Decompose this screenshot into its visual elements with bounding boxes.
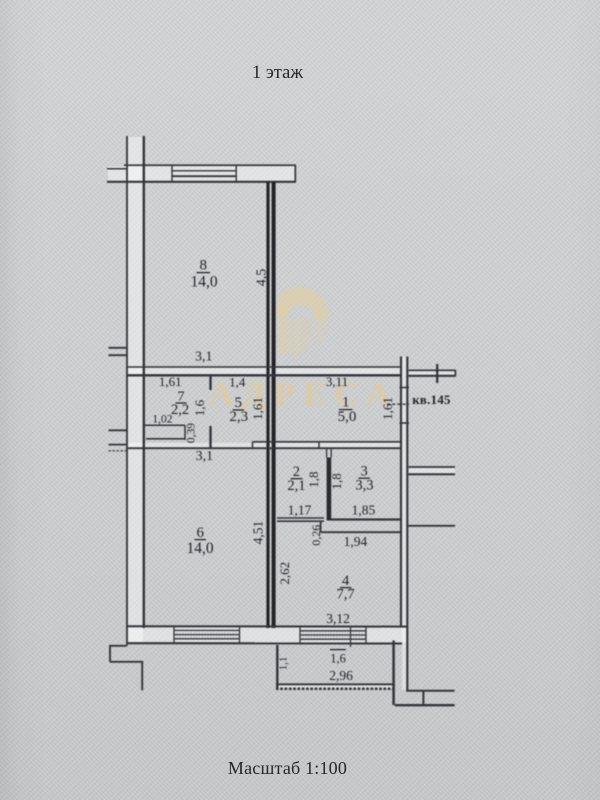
- svg-text:1,6: 1,6: [192, 399, 207, 416]
- svg-text:2,62: 2,62: [277, 562, 292, 585]
- svg-text:2,96: 2,96: [329, 668, 353, 683]
- svg-text:2,3: 2,3: [229, 409, 248, 425]
- svg-text:3,3: 3,3: [355, 477, 373, 493]
- svg-text:3,11: 3,11: [326, 374, 348, 389]
- svg-text:1,02: 1,02: [152, 414, 172, 426]
- svg-text:1,94: 1,94: [344, 534, 368, 549]
- svg-text:1,61: 1,61: [250, 397, 265, 420]
- svg-text:1,8: 1,8: [329, 473, 344, 489]
- svg-text:1,85: 1,85: [352, 503, 376, 518]
- svg-text:3,1: 3,1: [195, 349, 213, 364]
- svg-text:2,1: 2,1: [287, 478, 305, 494]
- svg-text:14,0: 14,0: [190, 274, 217, 291]
- svg-text:1,1: 1,1: [278, 657, 290, 671]
- svg-text:4,5: 4,5: [255, 269, 270, 287]
- svg-text:4,51: 4,51: [251, 521, 266, 545]
- svg-text:кв.145: кв.145: [412, 393, 450, 407]
- svg-text:1,17: 1,17: [288, 503, 312, 518]
- svg-text:5,0: 5,0: [338, 409, 357, 425]
- svg-text:7,7: 7,7: [337, 587, 355, 603]
- svg-text:8: 8: [199, 258, 207, 274]
- svg-text:0,26: 0,26: [309, 525, 323, 546]
- svg-text:2,2: 2,2: [171, 402, 189, 418]
- svg-text:0,39: 0,39: [185, 423, 197, 443]
- svg-text:1,61: 1,61: [159, 374, 182, 389]
- svg-text:6: 6: [197, 525, 205, 541]
- svg-text:1,4: 1,4: [229, 375, 246, 390]
- svg-text:1,61: 1,61: [380, 397, 395, 420]
- svg-text:1,8: 1,8: [306, 471, 321, 487]
- svg-text:3,12: 3,12: [326, 611, 350, 626]
- svg-text:1,6: 1,6: [330, 651, 346, 665]
- svg-text:14,0: 14,0: [186, 540, 213, 557]
- svg-text:3,1: 3,1: [196, 449, 214, 464]
